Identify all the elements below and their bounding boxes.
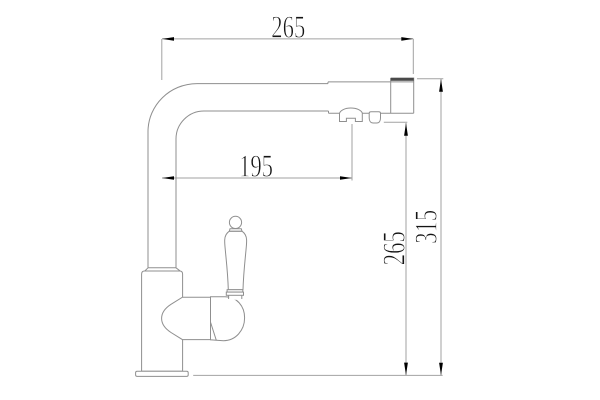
svg-text:265: 265 [271,9,305,45]
svg-text:315: 315 [408,210,444,244]
svg-text:195: 195 [239,148,273,184]
svg-text:265: 265 [375,231,411,265]
